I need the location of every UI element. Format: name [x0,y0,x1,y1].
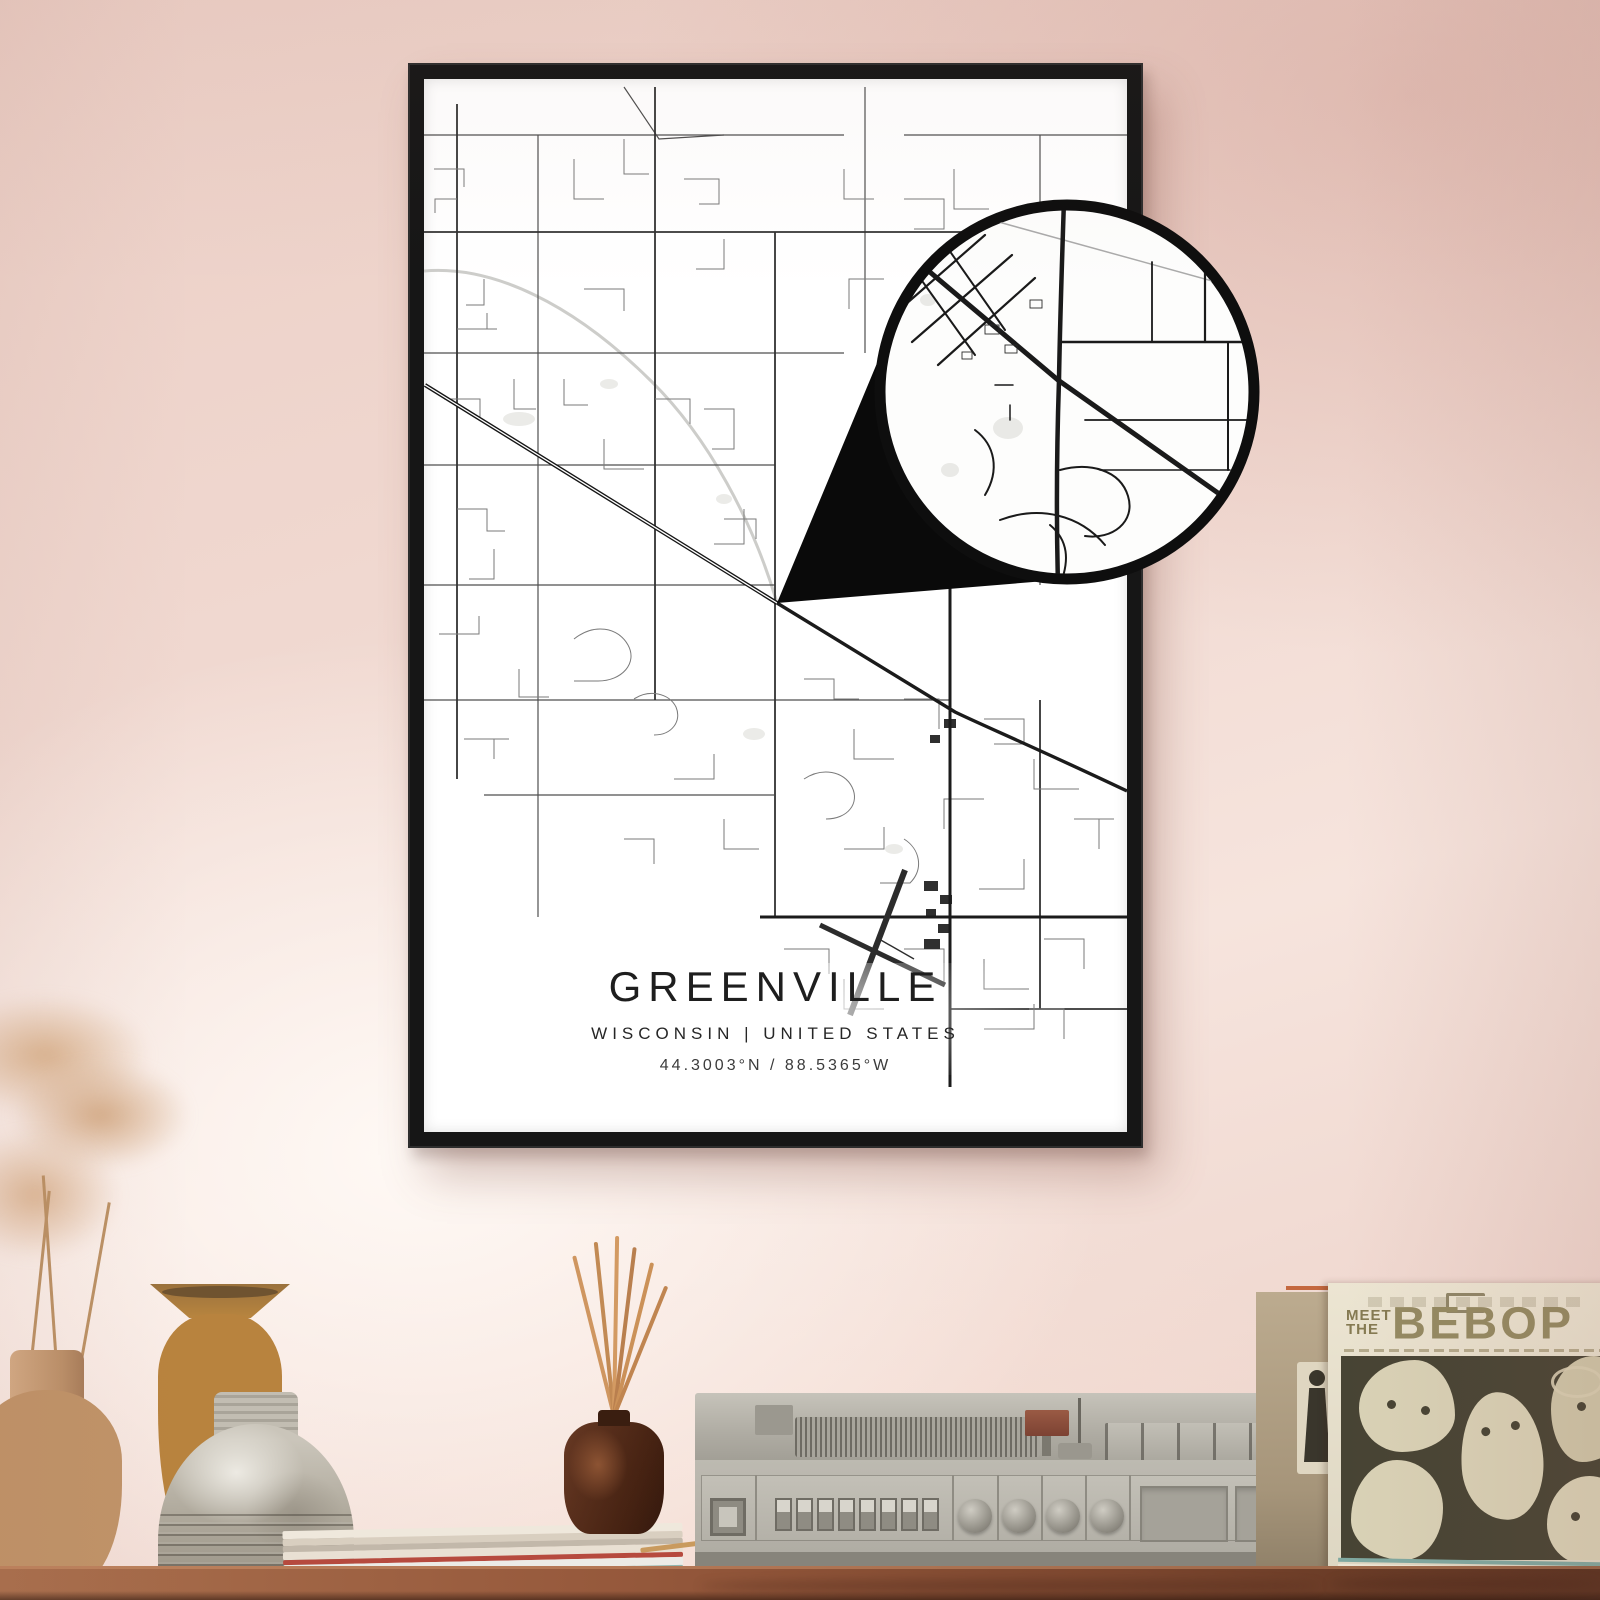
preset-button[interactable] [901,1498,918,1531]
sleeve-shadow [1330,1578,1600,1590]
room-photo: GREENVILLE WISCONSIN | UNITED STATES 44.… [0,0,1600,1600]
preset-button[interactable] [838,1498,855,1531]
vent-grille [795,1417,1040,1457]
sleeve-title: BEBOP [1392,1296,1574,1349]
figure-head [1309,1370,1325,1386]
sleeve-meet-the: MEET THE [1346,1309,1392,1337]
volume-knob[interactable] [958,1499,992,1533]
preset-button[interactable] [880,1498,897,1531]
record-player [695,1393,1322,1585]
preset-button[interactable] [775,1498,792,1531]
preset-button[interactable] [922,1498,939,1531]
panel-divider [1041,1475,1043,1541]
figure-suit [1304,1388,1330,1462]
amber-vase-rim [150,1284,290,1318]
tonearm-headshell [1025,1410,1069,1436]
balance-knob[interactable] [1046,1499,1080,1533]
panel-divider [1085,1475,1087,1541]
inset-panel [1140,1486,1228,1542]
deck-block [755,1405,793,1435]
art-face [1457,1389,1548,1522]
preset-button[interactable] [796,1498,813,1531]
player-shadow [700,1580,1320,1592]
sleeve-art-panel [1341,1356,1600,1560]
panel-divider [1129,1475,1131,1541]
reed-stick [612,1262,654,1416]
deck-cylinder [1058,1443,1092,1459]
tan-vase-body [0,1390,122,1588]
sleeve-credit-line [1344,1349,1600,1352]
art-figure [1351,1460,1443,1560]
bebop-record-sleeve: MEET THE BEBOP [1328,1283,1600,1579]
panel-divider [952,1475,954,1541]
preset-button[interactable] [859,1498,876,1531]
record-label-logo [1551,1366,1600,1398]
diffuser-bottle [564,1422,664,1534]
tuning-knob[interactable] [1002,1499,1036,1533]
tone-knob[interactable] [1090,1499,1124,1533]
panel-divider [997,1475,999,1541]
art-face [1547,1476,1600,1560]
preset-button[interactable] [817,1498,834,1531]
reed-diffuser [560,1262,670,1534]
shelf-scene: MEET THE BEBOP [0,0,1600,1600]
tan-vase [0,1350,122,1588]
art-face [1359,1360,1455,1452]
power-button[interactable] [710,1498,746,1536]
panel-divider [755,1475,757,1541]
tonearm-post [1042,1436,1051,1456]
